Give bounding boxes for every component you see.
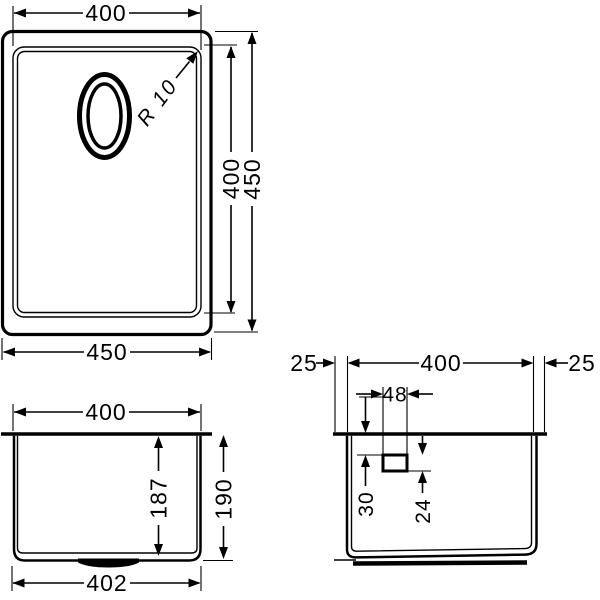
dim-label-offset-left: 25 <box>290 350 318 376</box>
arrowhead <box>154 436 163 448</box>
arrowhead <box>219 547 228 559</box>
arrowhead <box>13 579 25 588</box>
drain-outlet-box <box>383 455 407 471</box>
dim-label-front-top-width: 400 <box>85 399 126 425</box>
dim-label-corner-radius: R 10 <box>133 75 183 131</box>
arrowhead <box>199 348 211 357</box>
arrowhead <box>248 32 257 44</box>
side-view: 25 400 25 48 30 24 <box>290 350 596 563</box>
arrowhead <box>348 359 360 368</box>
arrowhead <box>407 390 419 399</box>
arrowhead <box>14 408 26 417</box>
arrowhead <box>188 9 200 18</box>
arrowhead <box>188 408 200 417</box>
arrowhead <box>14 9 26 18</box>
arrowhead <box>189 579 201 588</box>
arrowhead <box>545 359 557 368</box>
radius-leader-line <box>176 62 190 79</box>
sink-dimension-drawing: R 10 400 400 450 450 <box>0 0 600 600</box>
dim-label-drain-top-offset: 30 <box>355 491 378 516</box>
arrowhead <box>418 443 427 455</box>
arrowhead <box>418 471 427 483</box>
bowl-outer-wall <box>14 436 201 561</box>
arrowhead <box>219 435 228 447</box>
arrowhead <box>522 359 534 368</box>
dim-label-outer-height: 450 <box>239 158 265 199</box>
arrowhead <box>248 320 257 332</box>
dim-label-side-width: 400 <box>420 350 461 376</box>
dim-label-bottom-width: 450 <box>86 339 127 365</box>
bowl-inner-wall <box>352 436 532 552</box>
arrowhead <box>227 46 236 58</box>
top-view: R 10 400 400 450 450 <box>2 0 265 365</box>
front-view: 400 187 190 402 <box>1 399 237 596</box>
dim-label-front-bottom-width: 402 <box>86 570 127 596</box>
dim-label-inner-depth: 187 <box>146 477 172 518</box>
dim-label-offset-right: 25 <box>568 350 596 376</box>
dim-label-outer-depth: 190 <box>211 478 237 519</box>
dim-label-top-width: 400 <box>85 0 126 26</box>
base-profile-line <box>353 563 527 564</box>
arrowhead <box>323 359 335 368</box>
arrowhead <box>3 348 15 357</box>
drain-hole-inner-ring <box>88 84 121 148</box>
arrowhead <box>227 301 236 313</box>
dim-label-drain-height: 24 <box>412 498 435 523</box>
arrowhead <box>361 455 370 467</box>
drain-flange <box>78 559 139 568</box>
arrowhead <box>361 421 370 433</box>
dim-label-drain-width: 48 <box>382 383 407 406</box>
arrowhead <box>154 544 163 556</box>
technical-drawing-canvas: R 10 400 400 450 450 <box>0 0 600 600</box>
